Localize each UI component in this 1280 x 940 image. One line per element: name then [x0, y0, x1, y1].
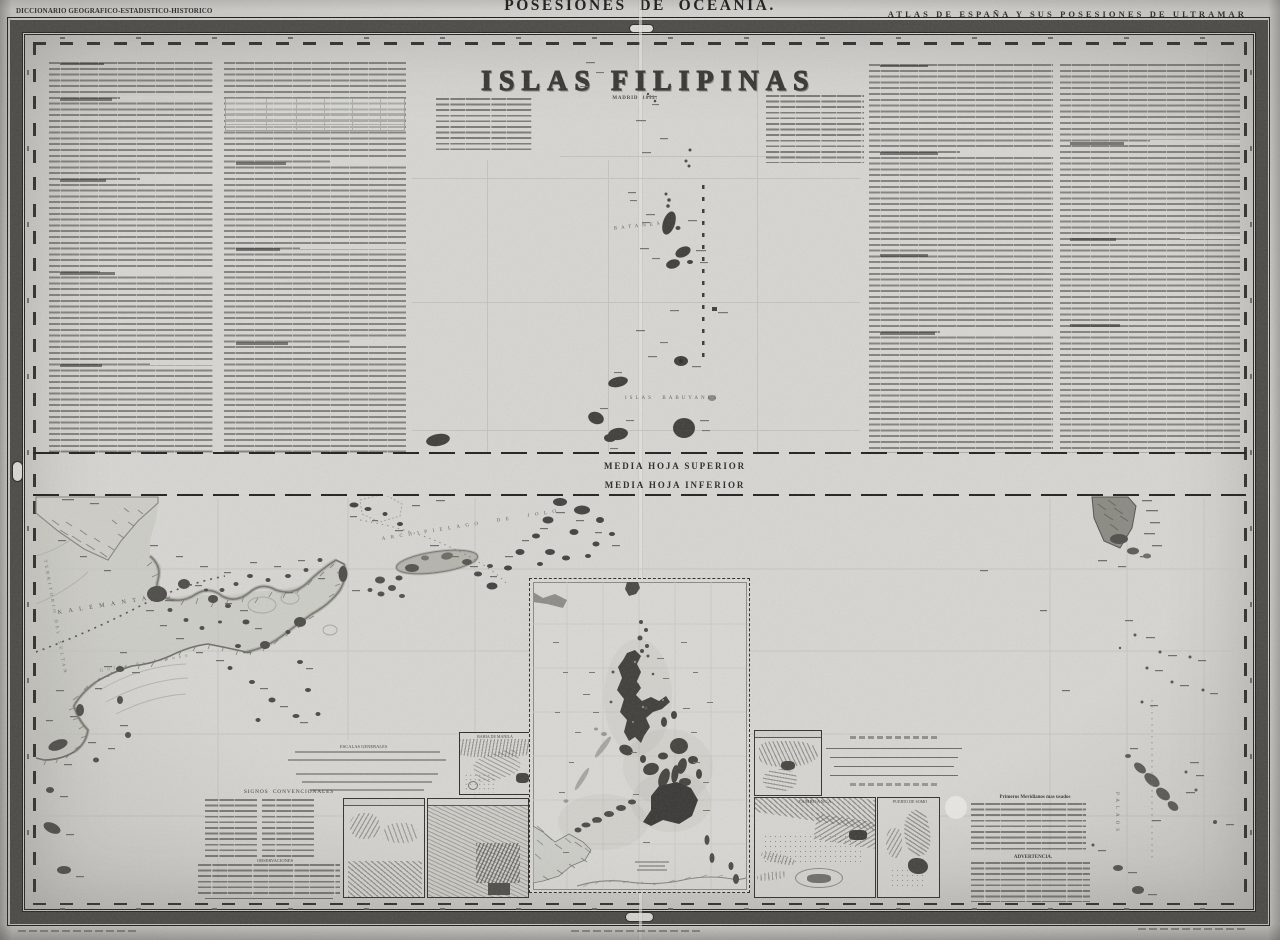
svg-text:ISLAS BABUYANES: ISLAS BABUYANES: [625, 396, 719, 401]
svg-text:PALAOS: PALAOS: [1114, 792, 1119, 835]
svg-text:ESCALAS GENERALES: ESCALAS GENERALES: [340, 744, 388, 749]
svg-text:BATANES: BATANES: [614, 221, 664, 231]
